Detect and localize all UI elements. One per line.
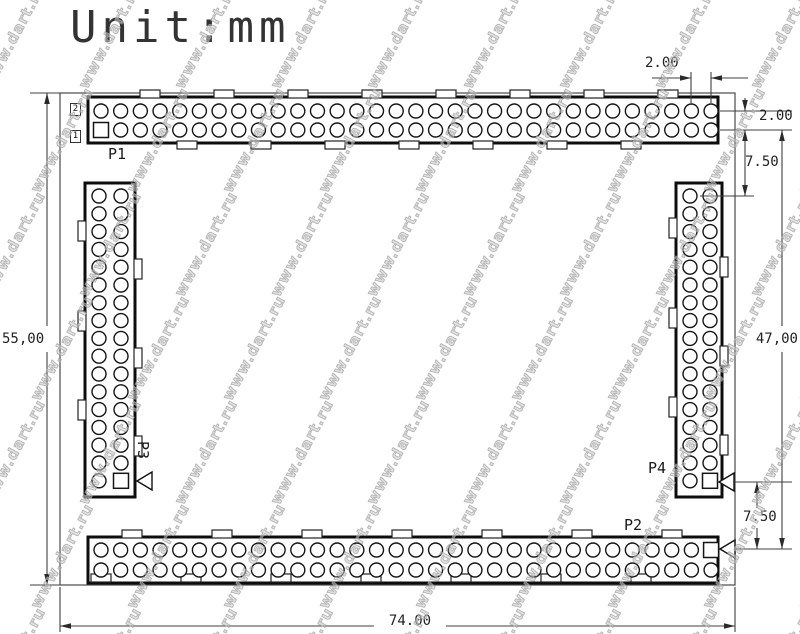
pin <box>114 242 128 256</box>
dim-label-row-pitch: 2.00 <box>759 108 793 124</box>
pin <box>409 543 423 557</box>
pin-1-square <box>94 123 109 138</box>
pin <box>291 123 305 137</box>
pin <box>703 260 717 274</box>
pin <box>114 296 128 310</box>
edge-tab <box>572 530 592 538</box>
pin <box>507 563 521 577</box>
pin <box>683 207 697 221</box>
pin <box>370 563 384 577</box>
edge-tab <box>122 530 142 538</box>
pin <box>606 104 620 118</box>
pin <box>527 123 541 137</box>
pin <box>684 543 698 557</box>
pin <box>114 189 128 203</box>
pin <box>92 367 106 381</box>
pin <box>251 543 265 557</box>
pin <box>703 314 717 328</box>
pin <box>645 563 659 577</box>
pin <box>133 543 147 557</box>
connector-label-p3: P3 <box>135 441 151 459</box>
pin <box>684 563 698 577</box>
arrowhead <box>680 75 691 81</box>
pin-row-label-2: 2 <box>70 103 81 116</box>
pin <box>232 104 246 118</box>
pin <box>625 563 639 577</box>
pin <box>703 331 717 345</box>
pin <box>92 474 106 488</box>
pin <box>114 278 128 292</box>
pin <box>683 278 697 292</box>
pin <box>114 543 128 557</box>
pin <box>370 104 384 118</box>
pin <box>92 456 106 470</box>
edge-tab <box>658 90 678 98</box>
pin <box>92 225 106 239</box>
dim-label-width: 74.00 <box>374 613 446 629</box>
pin <box>173 123 187 137</box>
pin <box>683 314 697 328</box>
pin <box>468 123 482 137</box>
pin <box>527 104 541 118</box>
pin <box>703 225 717 239</box>
pin <box>703 296 717 310</box>
pin-1-square <box>704 543 719 558</box>
pin <box>468 563 482 577</box>
pin <box>271 543 285 557</box>
pin <box>92 260 106 274</box>
pin <box>173 543 187 557</box>
pin <box>586 563 600 577</box>
pcb-outline-rect <box>60 93 735 585</box>
pin <box>683 474 697 488</box>
pin <box>448 563 462 577</box>
pin <box>468 543 482 557</box>
pin <box>92 296 106 310</box>
linework <box>0 0 800 634</box>
pin <box>92 438 106 452</box>
edge-tab <box>134 259 142 279</box>
pin <box>92 314 106 328</box>
pin <box>547 104 561 118</box>
edge-tab <box>662 530 682 538</box>
pin <box>114 314 128 328</box>
pin <box>291 104 305 118</box>
pin <box>330 543 344 557</box>
arrowhead <box>754 538 760 549</box>
dim-label-height: 55,00 <box>2 331 44 347</box>
pin <box>448 543 462 557</box>
pin <box>291 543 305 557</box>
pin <box>114 104 128 118</box>
pin <box>683 456 697 470</box>
pin <box>683 385 697 399</box>
pin <box>232 543 246 557</box>
edge-tab <box>288 90 308 98</box>
edge-tab <box>621 141 641 149</box>
pin <box>114 331 128 345</box>
edge-tab <box>140 90 160 98</box>
connector-p3 <box>78 183 142 497</box>
arrowhead <box>779 130 785 141</box>
edge-tab <box>547 141 567 149</box>
pin <box>173 563 187 577</box>
edge-tab <box>392 530 412 538</box>
pin <box>94 104 108 118</box>
pin <box>114 563 128 577</box>
connector-p1 <box>88 90 718 149</box>
dim-label-offset-top: 7.50 <box>745 154 779 170</box>
pin <box>429 543 443 557</box>
pin <box>703 242 717 256</box>
pin <box>114 403 128 417</box>
pin <box>683 296 697 310</box>
pin <box>271 104 285 118</box>
pin <box>703 403 717 417</box>
pin <box>683 438 697 452</box>
pin <box>94 563 108 577</box>
edge-tab <box>669 308 677 328</box>
pin <box>683 420 697 434</box>
pin <box>684 104 698 118</box>
pin <box>212 123 226 137</box>
pin <box>684 123 698 137</box>
connector-label-p4: P4 <box>648 460 666 476</box>
pin <box>251 123 265 137</box>
pin-1-square <box>114 473 129 488</box>
pin <box>133 104 147 118</box>
pin <box>547 123 561 137</box>
pin <box>683 189 697 203</box>
pin <box>153 104 167 118</box>
edge-tab <box>584 90 604 98</box>
pin <box>92 242 106 256</box>
pin <box>114 367 128 381</box>
edge-tab <box>134 348 142 368</box>
connector-p4 <box>669 183 728 497</box>
pin <box>92 420 106 434</box>
connector-label-p1: P1 <box>108 146 126 162</box>
arrowhead <box>724 623 735 629</box>
edge-tab <box>78 400 86 420</box>
pin <box>133 563 147 577</box>
pin <box>409 563 423 577</box>
pin <box>704 563 718 577</box>
pin <box>92 278 106 292</box>
pin <box>389 543 403 557</box>
pin <box>114 456 128 470</box>
connector-label-p2: P2 <box>624 517 642 533</box>
pin <box>409 123 423 137</box>
pin <box>547 543 561 557</box>
pin <box>683 367 697 381</box>
dim-label-offset-bottom: 7.50 <box>743 509 777 525</box>
pin <box>566 104 580 118</box>
pin-1-square <box>703 473 718 488</box>
pin <box>566 563 580 577</box>
dim-label-pin-field: 47,00 <box>740 331 798 347</box>
pin <box>350 563 364 577</box>
pin <box>114 349 128 363</box>
pin <box>665 104 679 118</box>
pin <box>212 104 226 118</box>
pin <box>507 543 521 557</box>
pin <box>114 438 128 452</box>
pin <box>625 543 639 557</box>
edge-tab <box>669 397 677 417</box>
pin <box>92 403 106 417</box>
pin <box>665 543 679 557</box>
pin <box>192 563 206 577</box>
pin <box>448 104 462 118</box>
pin <box>92 385 106 399</box>
pin <box>153 543 167 557</box>
pin <box>133 123 147 137</box>
pin <box>310 563 324 577</box>
connectors <box>78 90 728 583</box>
pin <box>271 123 285 137</box>
pin <box>370 123 384 137</box>
drawing-canvas: Unit:mm P1 P2 P3 P4 55,00 74.00 47,00 2.… <box>0 0 800 634</box>
edge-tab <box>669 218 677 238</box>
pin <box>703 438 717 452</box>
pin <box>703 278 717 292</box>
pin <box>92 349 106 363</box>
arrowhead <box>711 75 722 81</box>
pin <box>173 104 187 118</box>
pin <box>251 563 265 577</box>
pin <box>92 207 106 221</box>
unit-label: Unit:mm <box>70 5 290 51</box>
pin-row-label-1: 1 <box>70 130 81 143</box>
edge-tab <box>436 90 456 98</box>
edge-tab <box>362 90 382 98</box>
edge-tab <box>78 221 86 241</box>
arrowhead <box>742 185 748 196</box>
pin <box>350 104 364 118</box>
edge-tab <box>302 530 322 538</box>
pin <box>350 123 364 137</box>
pin <box>625 104 639 118</box>
arrowhead <box>44 93 50 104</box>
pin <box>409 104 423 118</box>
pin <box>507 123 521 137</box>
pin <box>606 123 620 137</box>
pin <box>192 543 206 557</box>
pin <box>683 242 697 256</box>
dim-label-pitch-top: 2.00 <box>645 55 679 71</box>
arrowhead <box>742 100 748 111</box>
pin <box>114 260 128 274</box>
pin <box>114 225 128 239</box>
pin <box>114 207 128 221</box>
pin <box>310 104 324 118</box>
pin <box>153 563 167 577</box>
pin <box>704 123 718 137</box>
pin <box>389 104 403 118</box>
pin <box>114 420 128 434</box>
edge-tab <box>482 530 502 538</box>
pin <box>92 189 106 203</box>
pin <box>192 123 206 137</box>
pin <box>94 543 108 557</box>
edge-tab <box>720 435 728 455</box>
pin <box>683 225 697 239</box>
pin <box>703 367 717 381</box>
pin <box>370 543 384 557</box>
pin <box>645 104 659 118</box>
pin <box>271 563 285 577</box>
arrowhead <box>44 574 50 585</box>
pin <box>429 104 443 118</box>
edge-tab <box>325 141 345 149</box>
pin <box>665 563 679 577</box>
pin <box>153 123 167 137</box>
pin <box>703 420 717 434</box>
pin <box>310 123 324 137</box>
pin <box>330 104 344 118</box>
pin <box>468 104 482 118</box>
board-outline <box>60 93 735 585</box>
pin <box>488 563 502 577</box>
pin <box>665 123 679 137</box>
pin <box>212 563 226 577</box>
pin <box>683 349 697 363</box>
pin <box>310 543 324 557</box>
pin <box>192 104 206 118</box>
pin <box>251 104 265 118</box>
edge-tab <box>720 257 728 277</box>
pin <box>350 543 364 557</box>
arrowhead <box>779 538 785 549</box>
pin <box>547 563 561 577</box>
pin <box>232 123 246 137</box>
pin <box>429 563 443 577</box>
pin <box>232 563 246 577</box>
pin <box>625 123 639 137</box>
pin <box>683 403 697 417</box>
arrowhead <box>742 130 748 141</box>
pin <box>586 104 600 118</box>
pin <box>389 563 403 577</box>
pin <box>429 123 443 137</box>
pin <box>645 543 659 557</box>
edge-tab <box>251 141 271 149</box>
pin <box>586 543 600 557</box>
pin1-arrow-p3 <box>137 472 152 490</box>
pin <box>703 207 717 221</box>
pin <box>527 563 541 577</box>
edge-tab <box>720 346 728 366</box>
pin <box>703 349 717 363</box>
pin <box>488 104 502 118</box>
pin <box>114 123 128 137</box>
pin <box>566 123 580 137</box>
edge-tab <box>177 141 197 149</box>
pin <box>488 123 502 137</box>
pin <box>703 456 717 470</box>
arrowhead <box>754 482 760 493</box>
pin <box>330 123 344 137</box>
pin <box>92 331 106 345</box>
pin1-arrow-p2 <box>720 540 735 558</box>
pin <box>507 104 521 118</box>
pin <box>389 123 403 137</box>
edge-tab <box>399 141 419 149</box>
pin <box>488 543 502 557</box>
pin <box>606 563 620 577</box>
pin <box>330 563 344 577</box>
pin <box>586 123 600 137</box>
edge-tab <box>473 141 493 149</box>
pin <box>645 123 659 137</box>
pin <box>683 260 697 274</box>
connector-p2 <box>88 530 719 583</box>
pin <box>291 563 305 577</box>
pin <box>683 331 697 345</box>
edge-tab <box>510 90 530 98</box>
pin <box>704 104 718 118</box>
pin <box>703 385 717 399</box>
edge-tab <box>78 311 86 331</box>
edge-tab <box>214 90 234 98</box>
arrowhead <box>60 623 71 629</box>
pin <box>448 123 462 137</box>
pin <box>606 543 620 557</box>
pin <box>527 543 541 557</box>
pin <box>212 543 226 557</box>
pin <box>566 543 580 557</box>
pin <box>114 385 128 399</box>
edge-tab <box>212 530 232 538</box>
